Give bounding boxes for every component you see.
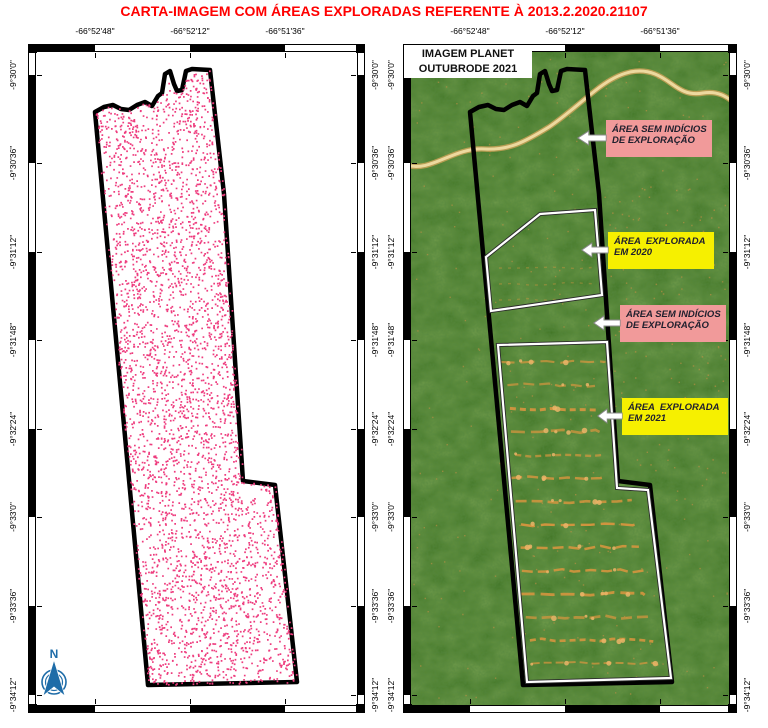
graticule-tick [723,75,728,76]
carta-imagem-page: { "title": "CARTA-IMAGEM COM ÁREAS EXPLO… [0,0,768,728]
neatline-bottom [403,705,737,713]
inset-title-line1: IMAGEM PLANET [422,47,514,61]
dot-map-canvas: N [28,44,365,713]
inset-title-line2: OUTUBRODE 2021 [419,62,517,76]
lat-tick-label: -9°30'36" [370,146,380,181]
graticule-tick [412,252,417,253]
graticule-tick [351,695,356,696]
lat-tick-label: -9°30'36" [8,146,18,181]
graticule-tick [723,695,728,696]
graticule-tick [37,75,42,76]
lat-tick-label: -9°34'12" [386,678,396,713]
lon-tick-label: -66°52'48" [75,26,114,36]
graticule-tick [37,695,42,696]
lat-tick-label: -9°32'24" [370,412,380,447]
label-line: EM 2020 [614,247,709,258]
left-arrow-icon [597,407,623,425]
graticule-tick [412,695,417,696]
page-title: CARTA-IMAGEM COM ÁREAS EXPLORADAS REFERE… [0,3,768,19]
neatline-left [403,44,411,713]
frame-corner [356,44,365,53]
graticule-tick [351,252,356,253]
label-line: ÁREA EXPLORADA [614,236,709,247]
lat-tick-label: -9°33'36" [742,589,752,624]
lat-tick-label: -9°32'24" [8,412,18,447]
label-line: DE EXPLORAÇÃO [612,135,707,146]
right-map-panel: IMAGEM PLANET OUTUBRODE 2021 ÁREA SEM IN… [403,44,737,713]
lon-tick-label: -66°51'36" [265,26,304,36]
left-arrow-icon [593,314,621,332]
graticule-tick [37,606,42,607]
graticule-tick [95,53,96,58]
lat-tick-label: -9°31'12" [742,235,752,270]
lat-tick-label: -9°31'48" [386,323,396,358]
left-map-panel: N [28,44,365,713]
graticule-tick [412,517,417,518]
lat-tick-label: -9°32'24" [742,412,752,447]
graticule-tick [412,606,417,607]
label-box: ÁREA SEM INDÍCIOS DE EXPLORAÇÃO [606,120,712,157]
graticule-tick [37,163,42,164]
neatline-left [28,44,36,713]
frame-corner [28,44,37,53]
graticule-tick [190,53,191,58]
graticule-tick [37,340,42,341]
graticule-tick [351,429,356,430]
lat-tick-label: -9°30'0" [386,60,396,90]
graticule-tick [351,75,356,76]
lon-tick-label: -66°51'36" [640,26,679,36]
graticule-tick [95,699,96,704]
graticule-tick [351,517,356,518]
lat-tick-label: -9°31'48" [370,323,380,358]
label-line: EM 2021 [628,413,723,424]
lat-tick-label: -9°33'36" [370,589,380,624]
lat-tick-label: -9°33'0" [386,502,396,532]
graticule-tick [412,163,417,164]
neatline-top [28,44,365,52]
graticule-tick [565,53,566,58]
left-arrow-icon [577,129,607,147]
lat-tick-label: -9°30'0" [370,60,380,90]
graticule-tick [37,252,42,253]
graticule-tick [190,699,191,704]
graticule-tick [565,699,566,704]
lat-tick-label: -9°32'24" [386,412,396,447]
graticule-tick [285,53,286,58]
graticule-tick [723,252,728,253]
lat-tick-label: -9°33'36" [8,589,18,624]
graticule-tick [285,699,286,704]
graticule-tick [723,517,728,518]
label-line: DE EXPLORAÇÃO [626,320,721,331]
frame-corner [728,44,737,53]
neatline-right [357,44,365,713]
label-line: ÁREA SEM INDÍCIOS [626,309,721,320]
graticule-tick [412,340,417,341]
graticule-tick [412,429,417,430]
graticule-tick [351,340,356,341]
label-box: ÁREA EXPLORADA EM 2021 [622,398,728,435]
graticule-tick [723,606,728,607]
graticule-tick [723,163,728,164]
frame-corner [728,704,737,713]
lat-tick-label: -9°31'48" [742,323,752,358]
lat-tick-label: -9°30'36" [386,146,396,181]
lat-tick-label: -9°31'48" [8,323,18,358]
lat-tick-label: -9°30'36" [742,146,752,181]
label-line: ÁREA SEM INDÍCIOS [612,124,707,135]
lat-tick-label: -9°34'12" [742,678,752,713]
lat-tick-label: -9°30'0" [742,60,752,90]
lon-tick-label: -66°52'48" [450,26,489,36]
left-arrow-icon [581,241,609,259]
graticule-tick [660,53,661,58]
lat-tick-label: -9°31'12" [386,235,396,270]
frame-corner [403,704,412,713]
graticule-tick [37,517,42,518]
graticule-tick [470,699,471,704]
lat-tick-label: -9°30'0" [8,60,18,90]
graticule-tick [351,163,356,164]
graticule-tick [37,429,42,430]
label-box: ÁREA SEM INDÍCIOS DE EXPLORAÇÃO [620,305,726,342]
lon-tick-label: -66°52'12" [170,26,209,36]
lat-tick-label: -9°31'12" [370,235,380,270]
lat-tick-label: -9°34'12" [8,678,18,713]
lat-tick-label: -9°33'0" [742,502,752,532]
graticule-tick [660,699,661,704]
lat-tick-label: -9°31'12" [8,235,18,270]
lon-tick-label: -66°52'12" [545,26,584,36]
lat-tick-label: -9°33'0" [370,502,380,532]
neatline-right [729,44,737,713]
inset-title-box: IMAGEM PLANET OUTUBRODE 2021 [404,45,532,78]
label-box: ÁREA EXPLORADA EM 2020 [608,232,714,269]
frame-corner [356,704,365,713]
lat-tick-label: -9°33'36" [386,589,396,624]
label-line: ÁREA EXPLORADA [628,402,723,413]
neatline-bottom [28,705,365,713]
frame-corner [28,704,37,713]
graticule-tick [351,606,356,607]
lat-tick-label: -9°34'12" [370,678,380,713]
lat-tick-label: -9°33'0" [8,502,18,532]
